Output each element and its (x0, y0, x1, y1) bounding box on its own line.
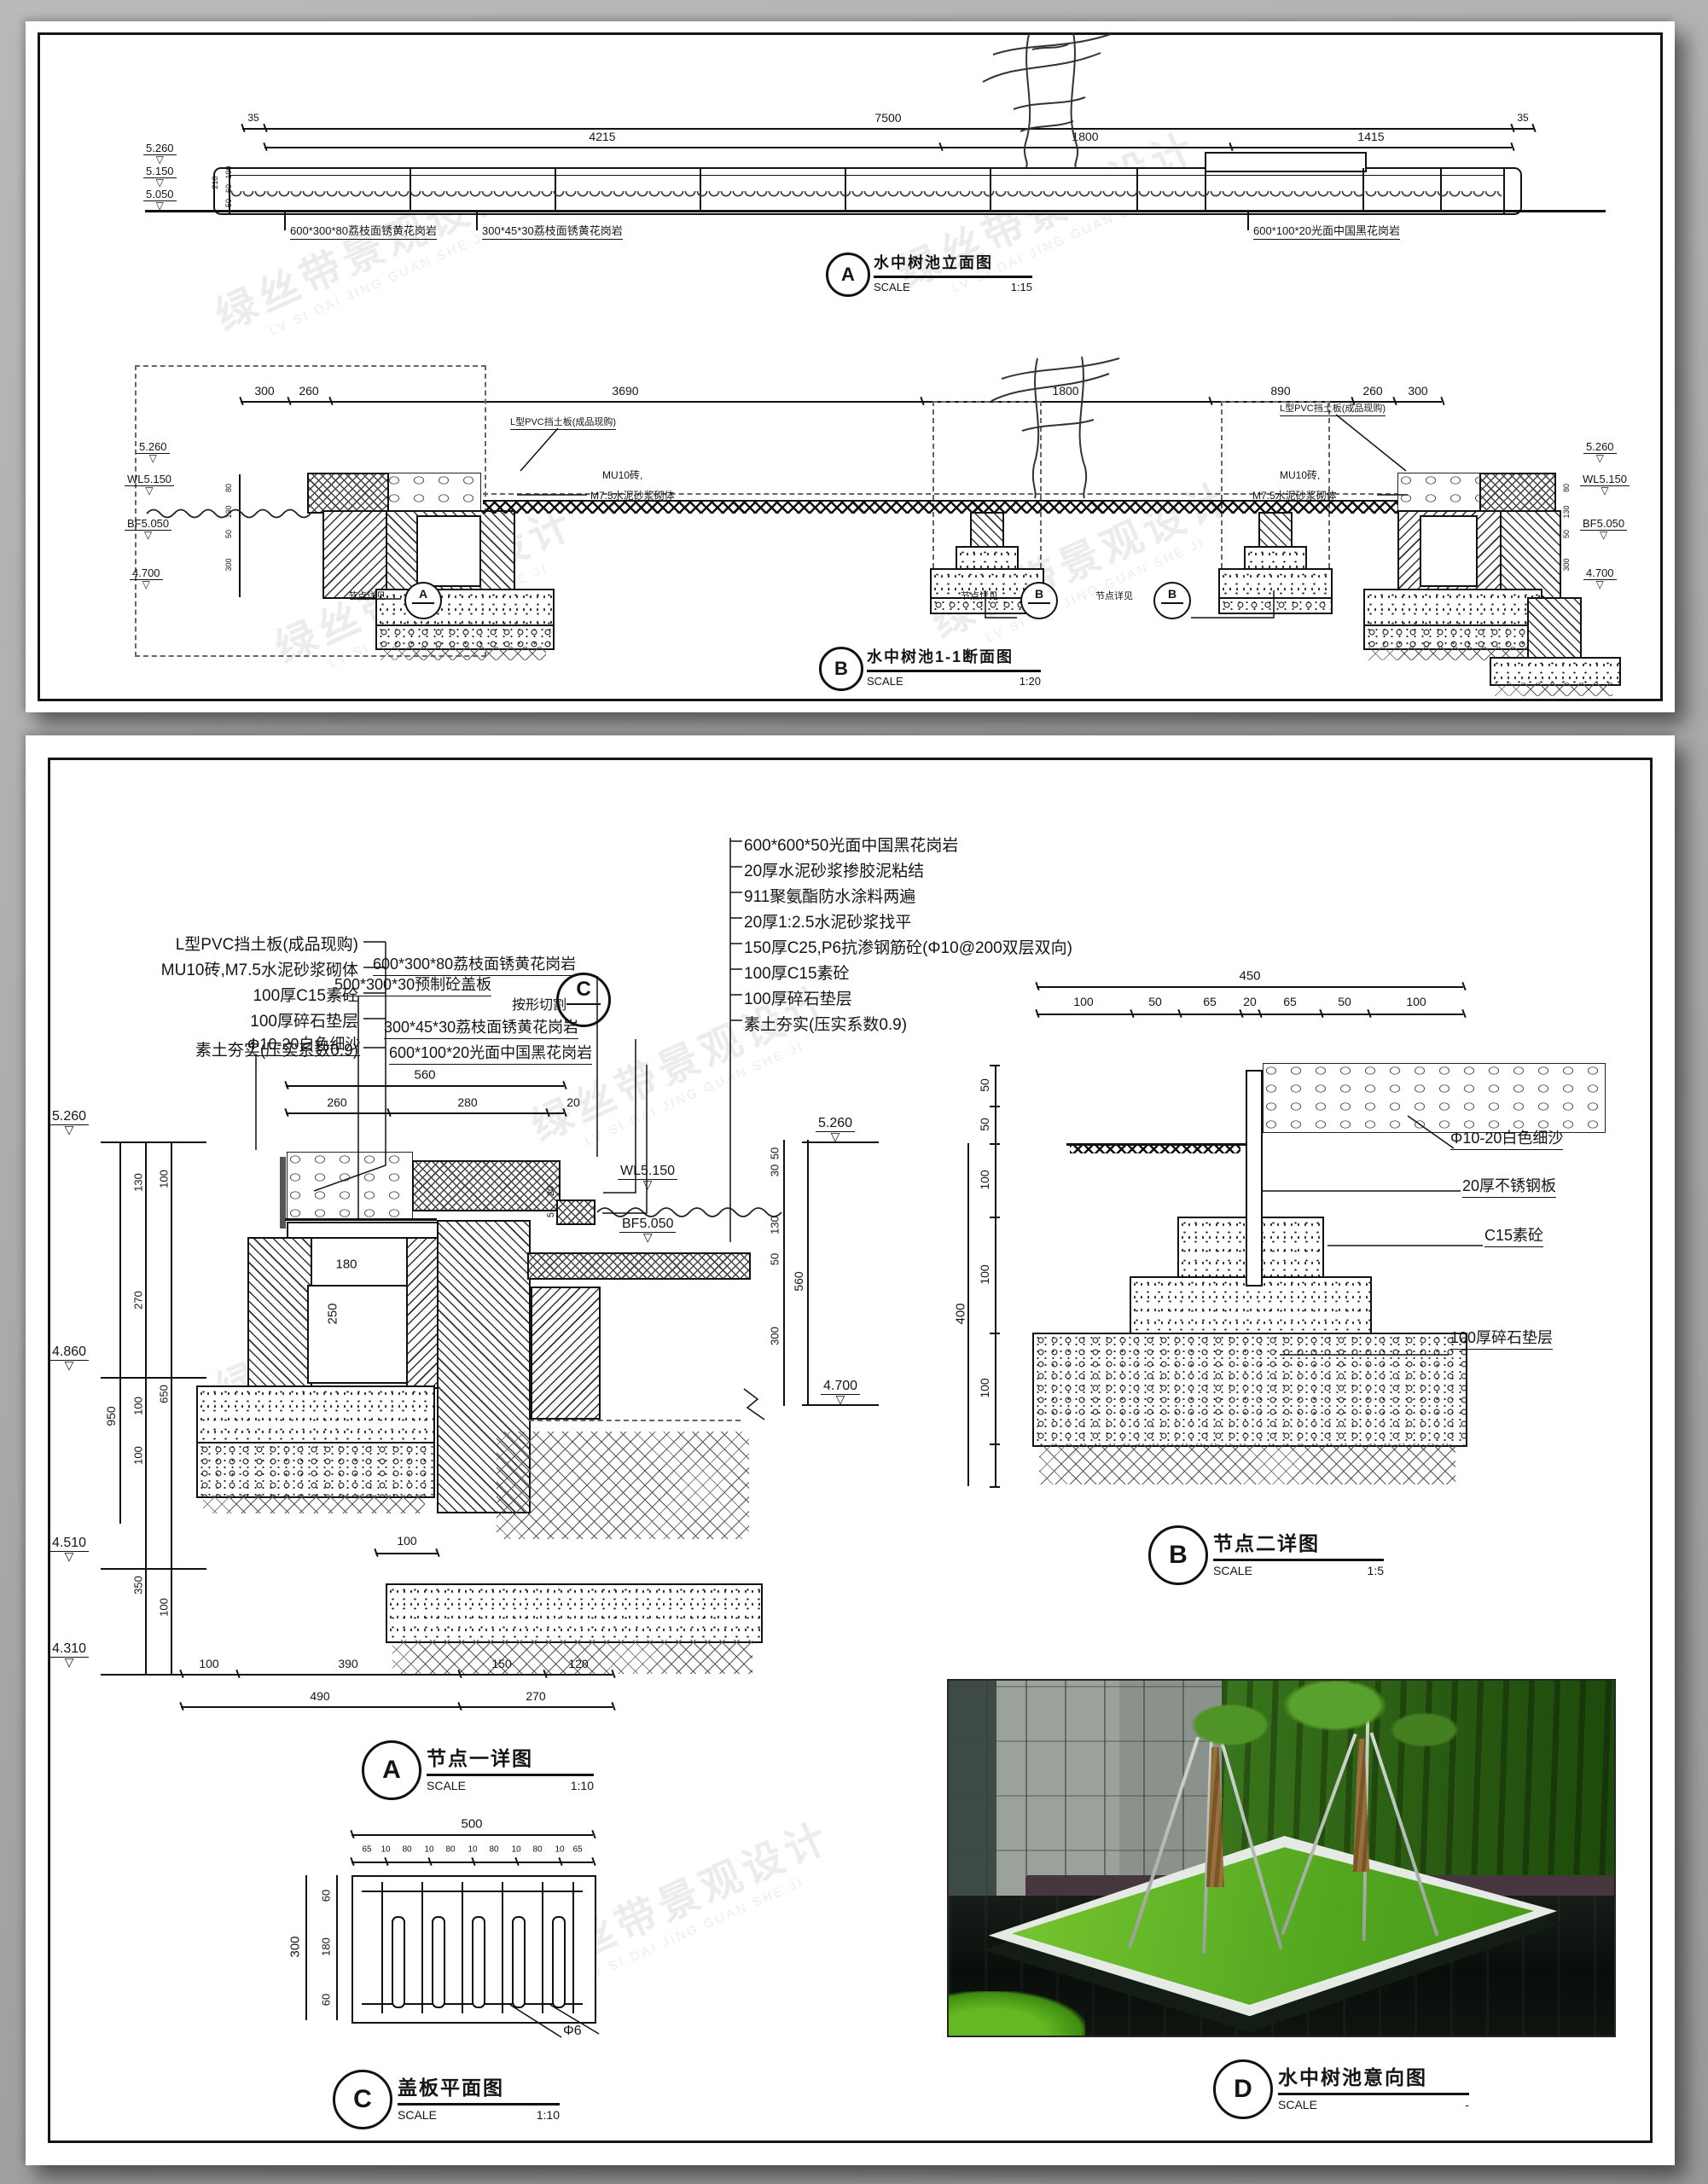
dim-label: 50 (1338, 995, 1351, 1008)
foundation-base (1218, 568, 1333, 601)
coping-joint (1136, 168, 1138, 211)
level-annotation: BF5.050 (1580, 517, 1627, 540)
dim-label: 80 (445, 1845, 455, 1855)
dim-label: 100 (158, 1170, 171, 1188)
soil-hatch (203, 1495, 425, 1513)
dim-label: 50 (769, 1147, 781, 1159)
page: 绿丝带景观设计LV SI DAI JING GUAN SHE JI 绿丝带景观设… (0, 0, 1708, 2184)
dim-label: 80 (1562, 484, 1571, 492)
dim-line (351, 1834, 593, 1836)
rebar-bar (572, 1882, 574, 2013)
scale-value: 1:20 (1020, 675, 1041, 688)
dim-label: 130 (1562, 505, 1571, 518)
photo-bush (947, 1991, 1085, 2037)
soil-hatch (1495, 682, 1612, 696)
dim-label: 35 (1517, 112, 1528, 124)
coping-joint (700, 168, 701, 211)
rebar-callout: Φ6 (563, 2024, 582, 2039)
dim-label: 30 (769, 1165, 781, 1176)
dim-label: 100 (1073, 995, 1093, 1008)
dim-label: 300 (1562, 558, 1571, 571)
dim-label: 100 (158, 1598, 171, 1617)
rebar-bar (462, 1882, 463, 2013)
dim-label: 560 (414, 1068, 435, 1083)
foundation-stem (970, 512, 1004, 549)
dim-label: 80 (489, 1845, 498, 1855)
material-callout: 600*100*20光面中国黑花岗岩 (389, 1041, 592, 1065)
chain-tick (990, 1065, 1000, 1066)
dim-label: 210 (211, 176, 219, 189)
dim-line (181, 1706, 613, 1708)
coping-joint (410, 168, 411, 211)
dim-chain-line (171, 1141, 172, 1674)
dim-line (1037, 986, 1463, 988)
concrete-footing (1363, 589, 1542, 628)
material-callout: 500*300*30预制砼盖板 (334, 973, 491, 996)
level-annotation: 5.260 (143, 142, 177, 165)
coping-joint (1440, 168, 1442, 211)
dim-label: 50 (769, 1253, 781, 1265)
dim-label: 180 (320, 1937, 333, 1956)
deep-footing-hatch (1527, 597, 1582, 660)
dim-label: 100 (132, 1446, 145, 1465)
dim-label: 260 (1362, 384, 1382, 398)
dim-label: 250 (326, 1303, 340, 1324)
stone-curb (1479, 473, 1556, 514)
dim-chain-line (995, 1065, 996, 1486)
pier-core (1420, 515, 1478, 587)
level-annotation: 4.700 (130, 566, 163, 590)
foundation-stem (1258, 512, 1293, 549)
concrete-footing (375, 589, 555, 628)
dim-chain-line (783, 1140, 785, 1406)
soil-hatch (1039, 1443, 1455, 1484)
dim-label: 35 (247, 112, 259, 124)
level-annotation: 5.260 (49, 1109, 89, 1135)
rebar-bar (421, 1882, 423, 2013)
dim-label: 130 (132, 1173, 145, 1192)
level-line (101, 1141, 206, 1143)
material-item: 600*600*50光面中国黑花岗岩 (744, 833, 958, 856)
dim-label: 100 (397, 1534, 416, 1548)
soil-hatch (497, 1432, 749, 1539)
chain-tick (990, 1217, 1000, 1218)
node-ref-bubble: B (1153, 582, 1191, 619)
level-annotation: 5.050 (143, 188, 177, 211)
drawing-title: 水中树池1-1断面图 SCALE1:20 (867, 645, 1041, 688)
dim-label: 130 (224, 505, 233, 518)
concrete-footing (196, 1385, 435, 1445)
dim-line (286, 1085, 564, 1087)
level-annotation: WL5.150 (618, 1164, 677, 1189)
drain-slot (512, 1916, 526, 2008)
level-line (802, 1141, 879, 1143)
dim-label: 300 (288, 1936, 303, 1957)
node-ref-text: 节点详见 (348, 589, 386, 602)
node-ref-text: 节点详见 (1095, 589, 1133, 602)
material-item: 100厚C15素砼 (744, 961, 850, 984)
material-callout: MU10砖, (1280, 468, 1320, 482)
drawing-ref-circle: C (333, 2070, 392, 2129)
drawing-ref-circle: B (1148, 1525, 1208, 1585)
dim-label: 300 (769, 1327, 781, 1345)
chain-tick (990, 1106, 1000, 1107)
scale-value: 1:10 (537, 2108, 560, 2122)
level-annotation: 4.860 (49, 1345, 89, 1370)
node-ref-text: 节点详见 (961, 589, 998, 602)
dim-label: 300 (224, 558, 233, 571)
island-curb (1205, 152, 1367, 172)
chain-tick (990, 1443, 1000, 1445)
material-item: 20厚水泥砂浆掺胶泥粘结 (744, 858, 924, 881)
level-annotation: 4.700 (1583, 566, 1617, 590)
dim-label: 650 (158, 1385, 171, 1403)
dim-line (181, 1674, 613, 1676)
material-item: 150厚C25,P6抗渗钢筋砼(Φ10@200双层双向) (744, 935, 1072, 958)
wall-hatch (322, 510, 389, 599)
material-callout: MU10砖, (602, 468, 642, 482)
right-cap (1503, 167, 1522, 215)
level-annotation: 5.260 (816, 1116, 855, 1141)
chain-tick (990, 1143, 1000, 1145)
deep-footing (1490, 657, 1621, 686)
pebble-band (1263, 1063, 1606, 1133)
dim-label: 100 (199, 1657, 218, 1670)
dim-label: 65 (1203, 995, 1217, 1008)
dim-label: 4215 (589, 130, 615, 143)
dim-label: 100 (978, 1264, 991, 1284)
dim-label: 65 (362, 1845, 371, 1855)
wall-hatch (406, 1237, 440, 1389)
level-annotation: 5.260 (1583, 440, 1617, 463)
drawing-ref-circle: B (819, 647, 863, 691)
pier-core (416, 515, 481, 587)
dim-label: 5 (546, 1212, 556, 1217)
coping-joint (555, 168, 556, 211)
chain-tick (990, 1333, 1000, 1334)
material-callout: 20厚不锈钢板 (1462, 1174, 1556, 1198)
dim-chain-line (145, 1141, 147, 1674)
drawing-title: 盖板平面图 SCALE1:10 (398, 2071, 560, 2122)
level-annotation: 4.700 (821, 1379, 860, 1404)
dim-label: 10 (381, 1845, 390, 1855)
drawing-ref-circle: D (1213, 2059, 1273, 2119)
dim-chain-line (119, 1141, 121, 1524)
level-annotation: BF5.050 (125, 517, 171, 540)
material-item: 100厚C15素砼 (51, 983, 358, 1006)
material-callout: 600*100*20光面中国黑花岗岩 (1253, 222, 1400, 240)
dim-label: 500 (461, 1817, 482, 1832)
dim-label: 80 (402, 1845, 411, 1855)
dim-label: 400 (954, 1303, 968, 1324)
scale-label: SCALE (398, 2108, 437, 2122)
leader-line (284, 212, 286, 230)
level-annotation: 4.310 (49, 1641, 89, 1667)
scale-label: SCALE (867, 675, 903, 688)
drain-slot (472, 1916, 485, 2008)
drain-slot (432, 1916, 445, 2008)
stone-curb (307, 473, 389, 514)
wall-hatch (1496, 510, 1561, 601)
pool-floor-slab (527, 1252, 751, 1280)
dim-label: 60 (320, 1994, 333, 2006)
dim-chain-line (305, 1875, 307, 2020)
dim-label: 100 (1406, 995, 1426, 1008)
shell-wall-hatch (531, 1287, 601, 1420)
dim-line (264, 147, 1512, 148)
dim-label: 50 (224, 199, 233, 207)
dim-line (286, 1112, 564, 1114)
drawing-title: 节点一详图 SCALE1:10 (427, 1742, 594, 1792)
slab-top-line (285, 1218, 437, 1221)
material-callout: L型PVC挡土板(成品现购) (1280, 401, 1386, 416)
gravel-bed (196, 1442, 435, 1498)
dim-chain-line (336, 1875, 338, 2020)
dim-label: 180 (335, 1258, 357, 1272)
drawing-ref-circle: A (362, 1740, 421, 1800)
material-callout: 100厚碎石垫层 (1450, 1326, 1553, 1350)
coping-joint (990, 168, 991, 211)
material-item: 911聚氨酯防水涂料两遍 (744, 884, 915, 907)
dim-label: 270 (132, 1291, 145, 1310)
drawing-ref-circle: A (826, 253, 870, 297)
dim-label: 100 (132, 1397, 145, 1415)
dim-label: 80 (532, 1845, 542, 1855)
gravel-bed (1032, 1333, 1467, 1447)
drain-slot (552, 1916, 566, 2008)
soil-hatch (381, 647, 546, 660)
material-callout: 300*45*30荔枝面锈黄花岗岩 (482, 222, 623, 240)
level-annotation: 5.150 (143, 165, 177, 188)
dim-label: 350 (132, 1576, 145, 1594)
rebar-bar (542, 1882, 543, 2013)
dim-chain-line (239, 474, 241, 597)
level-line (101, 1568, 206, 1570)
scale-value: 1:15 (1011, 281, 1032, 293)
granite-curb (412, 1160, 561, 1211)
dim-label: 10 (511, 1845, 520, 1855)
rebar-bar (381, 1882, 383, 2013)
level-line (101, 1377, 206, 1379)
dim-label: 490 (310, 1689, 329, 1703)
dim-label: 560 (792, 1271, 805, 1291)
scale-label: SCALE (1213, 1564, 1252, 1577)
material-callout: 600*300*80荔枝面锈黄花岗岩 (373, 952, 576, 976)
dim-label: 65 (572, 1845, 582, 1855)
level-annotation: WL5.150 (1580, 473, 1630, 496)
material-callout: L型PVC挡土板(成品现购) (510, 415, 616, 430)
dim-label: 100 (978, 1378, 991, 1397)
water-scallop-row (230, 191, 1502, 204)
leader-line (1247, 212, 1249, 230)
level-annotation: BF5.050 (619, 1217, 676, 1242)
coping-top-joint (229, 175, 1503, 176)
node-ref-bubble: B (1020, 582, 1058, 619)
scale-value: 1:10 (571, 1779, 594, 1792)
level-annotation: 4.510 (49, 1536, 89, 1561)
dim-label: 270 (526, 1689, 545, 1703)
dim-label: 20 (1243, 995, 1257, 1008)
material-callout: M7.5水泥砂浆砌体 (1252, 488, 1337, 502)
dim-label: 390 (338, 1657, 357, 1670)
dim-label: 80 (224, 484, 233, 492)
ground-line (145, 210, 1606, 212)
level-annotation: 5.260 (137, 440, 170, 463)
dim-label: 1415 (1357, 130, 1384, 143)
pebble-band (1397, 473, 1481, 512)
leader-line (476, 212, 478, 230)
pier-core (307, 1285, 411, 1384)
drawing-title: 水中树池意向图 SCALE- (1278, 2061, 1469, 2111)
dim-label: 10 (424, 1845, 433, 1855)
material-item: 100厚碎石垫层 (744, 986, 852, 1009)
dim-label: 120 (568, 1657, 588, 1670)
dim-label: 1800 (1052, 384, 1078, 398)
coping-joint (1362, 168, 1364, 211)
dim-label: 50 (1148, 995, 1162, 1008)
foundation-gravel (1218, 597, 1333, 614)
material-callout: 按形切割 (512, 993, 566, 1014)
dim-label: 50 (978, 1118, 991, 1131)
dim-label: 100 (224, 166, 233, 178)
dim-label: 950 (104, 1406, 118, 1426)
soil-strip (1070, 1145, 1240, 1153)
dim-label: 10 (468, 1845, 477, 1855)
dim-label: 300 (1408, 384, 1427, 398)
pebble-band (287, 1152, 413, 1220)
dim-label: 890 (1270, 384, 1290, 398)
dim-label: 7500 (874, 111, 901, 125)
material-item: L型PVC挡土板(成品现购) (51, 932, 358, 955)
granite-nosing (556, 1199, 595, 1225)
dim-label: 60 (224, 184, 233, 193)
dim-label: 20 (546, 1186, 556, 1196)
material-callout: 600*300*80荔枝面锈黄花岗岩 (290, 222, 437, 240)
brick-pier (247, 1237, 312, 1389)
dim-label: 130 (769, 1216, 781, 1234)
pebble-band (386, 473, 481, 512)
material-callout: Φ10-20白色细沙 (247, 1032, 360, 1056)
scale-value: 1:5 (1368, 1564, 1384, 1577)
dim-label: 1800 (1072, 130, 1098, 143)
scale-label: SCALE (874, 281, 910, 293)
rebar-line (362, 1891, 583, 1892)
material-callout: C15素砼 (1484, 1223, 1543, 1247)
material-item: 20厚1:2.5水泥砂浆找平 (744, 909, 911, 932)
material-callout: Φ10-20白色细沙 (1450, 1126, 1563, 1150)
chain-tick (990, 1486, 1000, 1488)
dim-line (375, 1553, 439, 1554)
dim-label: 50 (224, 530, 233, 538)
cover-slab (287, 1222, 440, 1239)
coping-joint (1205, 168, 1206, 211)
dim-label: 10 (555, 1845, 564, 1855)
dim-label: 3690 (612, 384, 638, 398)
rebar-bar (502, 1882, 503, 2013)
material-callout: 300*45*30荔枝面锈黄花岗岩 (384, 1015, 578, 1039)
scale-value: - (1465, 2098, 1469, 2111)
dim-line (242, 128, 1534, 130)
dim-label: 280 (457, 1095, 477, 1109)
level-annotation: WL5.150 (125, 473, 174, 496)
dim-label: 450 (1239, 969, 1260, 984)
material-item: 素土夯实(压实系数0.9) (744, 1012, 907, 1035)
waterproof-line (529, 1420, 741, 1421)
drain-slot (392, 1916, 405, 2008)
scale-label: SCALE (1278, 2098, 1317, 2111)
dim-label: 150 (491, 1657, 511, 1670)
dim-label: 65 (1283, 995, 1297, 1008)
drawing-title: 节点二详图 SCALE1:5 (1213, 1527, 1384, 1577)
dim-label: 50 (978, 1078, 991, 1092)
dim-label: 260 (327, 1095, 346, 1109)
dim-label: 20 (566, 1095, 580, 1109)
node-ref-bubble: A (404, 582, 442, 619)
dim-line (1037, 1014, 1463, 1015)
coping-joint (845, 168, 846, 211)
level-line (802, 1404, 879, 1406)
dim-label: 100 (978, 1170, 991, 1189)
dim-label: 60 (320, 1890, 333, 1902)
scale-label: SCALE (427, 1779, 466, 1792)
photo-canopy (1171, 1679, 1469, 1769)
drawing-title: 水中树池立面图 SCALE1:15 (874, 251, 1032, 293)
material-item: MU10砖,M7.5水泥砂浆砌体 (51, 957, 358, 980)
material-item: 100厚碎石垫层 (51, 1008, 358, 1031)
dim-chain-line (807, 1140, 809, 1406)
dim-label: 50 (1562, 530, 1571, 538)
reference-photo (947, 1679, 1616, 2037)
material-callout: M7.5水泥砂浆砌体 (590, 488, 675, 502)
base-footing (386, 1583, 763, 1643)
steel-plate-stem (1246, 1070, 1263, 1287)
